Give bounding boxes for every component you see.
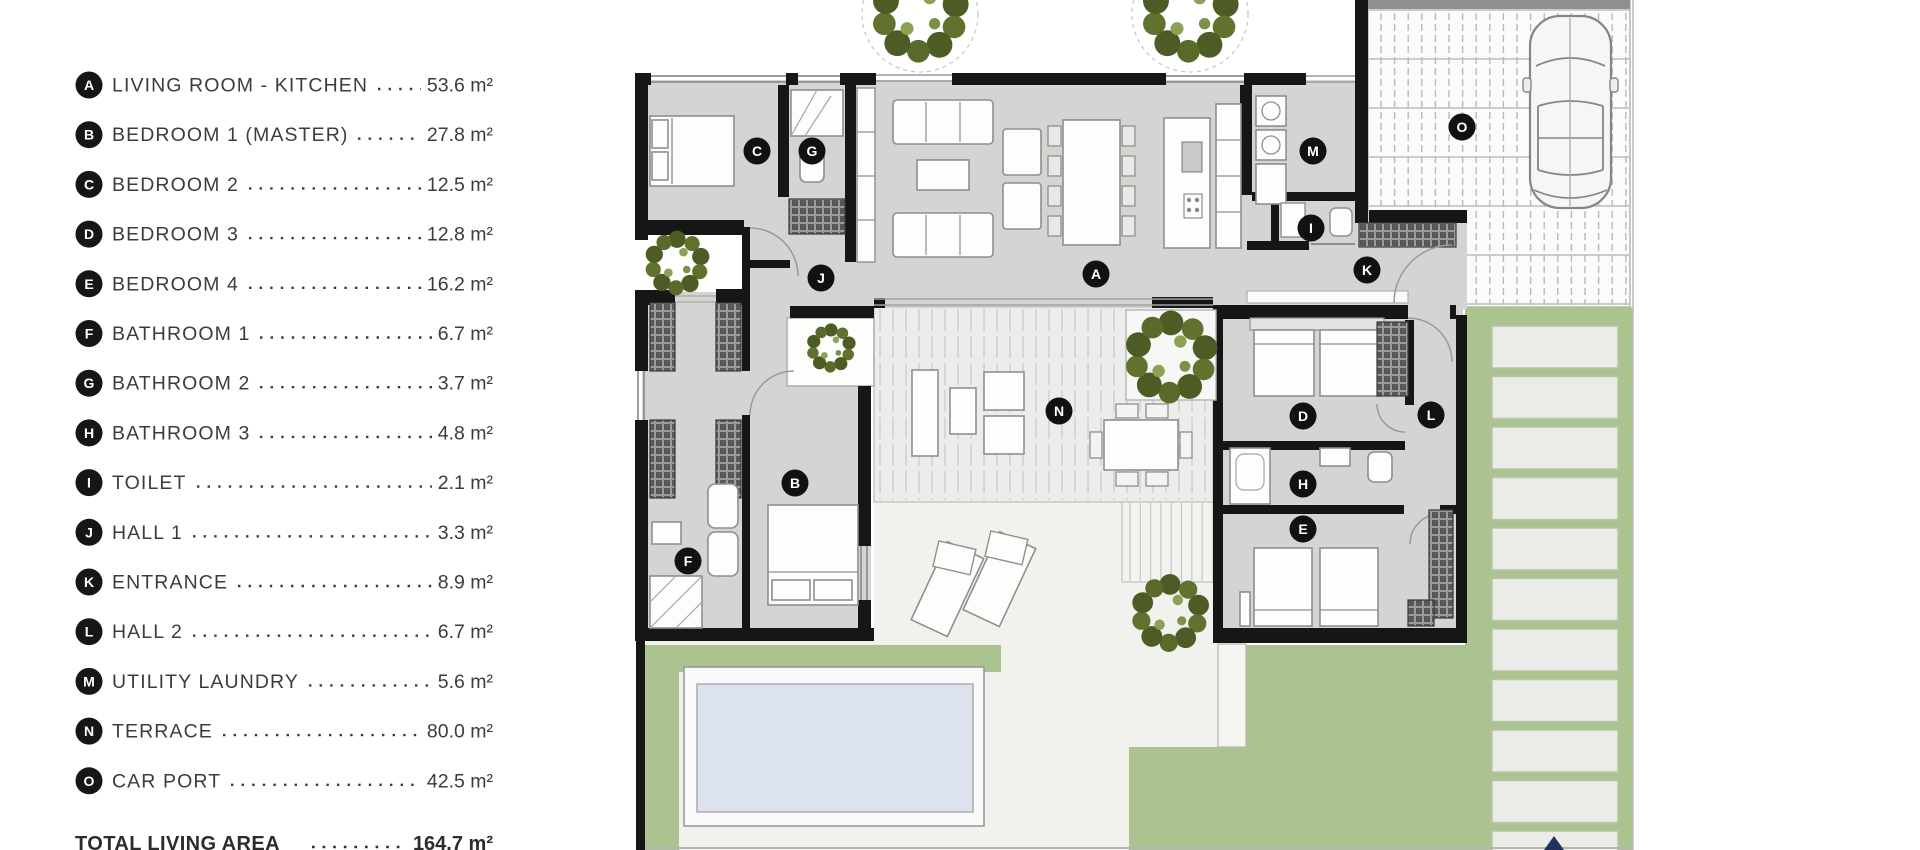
svg-text:6.7 m²: 6.7 m² [438, 323, 494, 345]
svg-text:4.8 m²: 4.8 m² [438, 422, 494, 444]
svg-text:F: F [85, 326, 94, 342]
svg-text:3.3 m²: 3.3 m² [438, 522, 494, 544]
svg-text:A: A [1091, 266, 1101, 282]
svg-text:C: C [84, 176, 94, 192]
svg-text:53.6 m²: 53.6 m² [427, 75, 494, 97]
svg-text:J: J [817, 270, 825, 286]
svg-text:TOTAL LIVING AREA: TOTAL LIVING AREA [75, 833, 280, 850]
svg-text:42.5 m²: 42.5 m² [427, 770, 494, 792]
svg-text:HALL 2: HALL 2 [112, 621, 183, 643]
svg-text:12.5 m²: 12.5 m² [427, 174, 494, 196]
svg-text:16.2 m²: 16.2 m² [427, 273, 494, 295]
svg-text:BEDROOM 2: BEDROOM 2 [112, 174, 239, 196]
svg-text:H: H [1298, 476, 1308, 492]
svg-text:12.8 m²: 12.8 m² [427, 224, 494, 246]
svg-text:TOILET: TOILET [112, 472, 187, 494]
svg-text:I: I [1309, 220, 1313, 236]
svg-text:L: L [85, 624, 94, 640]
svg-text:G: G [807, 143, 818, 159]
svg-text:K: K [84, 574, 94, 590]
svg-text:J: J [85, 524, 93, 540]
svg-text:D: D [84, 226, 94, 242]
svg-text:BEDROOM 1 (MASTER): BEDROOM 1 (MASTER) [112, 124, 348, 146]
svg-text:BEDROOM 3: BEDROOM 3 [112, 224, 239, 246]
svg-text:8.9 m²: 8.9 m² [438, 572, 494, 594]
svg-text:2.1 m²: 2.1 m² [438, 472, 494, 494]
svg-text:N: N [84, 723, 94, 739]
svg-text:B: B [790, 475, 800, 491]
svg-text:L: L [1427, 407, 1436, 423]
svg-text:O: O [84, 773, 95, 789]
svg-text:BATHROOM 2: BATHROOM 2 [112, 373, 250, 395]
svg-text:LIVING ROOM - KITCHEN: LIVING ROOM - KITCHEN [112, 75, 368, 97]
svg-text:G: G [84, 375, 95, 391]
svg-text:TERRACE: TERRACE [112, 721, 213, 743]
svg-text:I: I [87, 475, 91, 491]
svg-text:6.7 m²: 6.7 m² [438, 621, 494, 643]
svg-text:164.7 m²: 164.7 m² [413, 833, 493, 850]
svg-text:M: M [83, 673, 95, 689]
svg-text:B: B [84, 127, 94, 143]
svg-text:BATHROOM 1: BATHROOM 1 [112, 323, 250, 345]
svg-text:5.6 m²: 5.6 m² [438, 671, 494, 693]
svg-text:N: N [1054, 403, 1064, 419]
svg-text:HALL 1: HALL 1 [112, 522, 183, 544]
svg-text:E: E [1298, 521, 1307, 537]
svg-text:CAR PORT: CAR PORT [112, 770, 221, 792]
svg-text:M: M [1307, 143, 1319, 159]
svg-text:A: A [84, 77, 94, 93]
svg-text:C: C [752, 143, 762, 159]
svg-text:D: D [1298, 408, 1308, 424]
svg-text:80.0 m²: 80.0 m² [427, 721, 494, 743]
svg-text:H: H [84, 425, 94, 441]
svg-text:3.7 m²: 3.7 m² [438, 373, 494, 395]
svg-text:F: F [684, 553, 693, 569]
svg-text:27.8 m²: 27.8 m² [427, 124, 494, 146]
svg-text:K: K [1362, 262, 1372, 278]
svg-text:BEDROOM 4: BEDROOM 4 [112, 273, 239, 295]
svg-text:UTILITY LAUNDRY: UTILITY LAUNDRY [112, 671, 299, 693]
svg-text:BATHROOM 3: BATHROOM 3 [112, 422, 250, 444]
svg-text:ENTRANCE: ENTRANCE [112, 572, 228, 594]
svg-text:O: O [1457, 119, 1468, 135]
svg-text:E: E [84, 276, 93, 292]
